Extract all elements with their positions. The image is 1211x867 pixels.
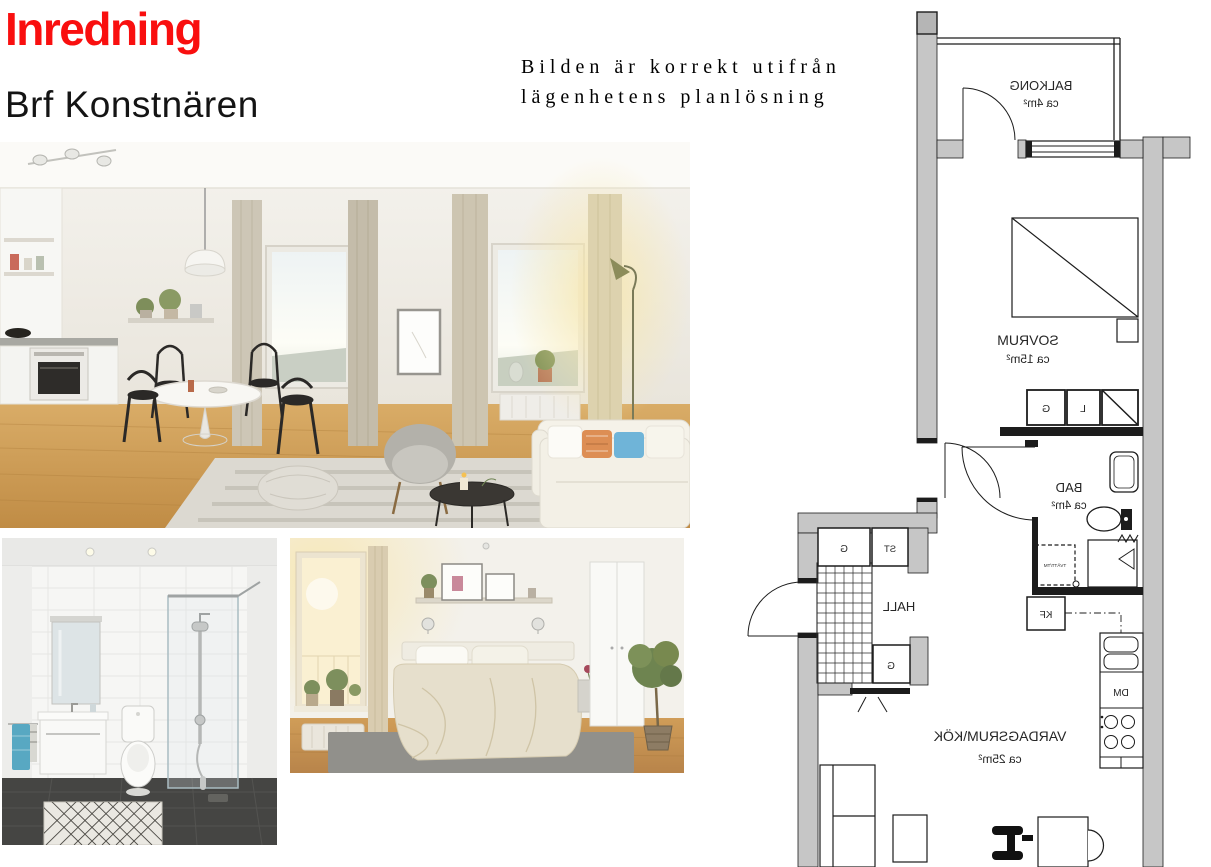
label-wardrobe-g: G (1042, 403, 1050, 415)
door-symbols (748, 88, 1035, 712)
wheelchair-symbol (992, 826, 1033, 860)
page-subtitle: Brf Konstnären (5, 84, 259, 126)
label-vardagsrum-area: ca 25m² (978, 752, 1021, 766)
kitchen-symbols (1065, 613, 1143, 768)
label-wardrobe-l: L (1080, 403, 1086, 415)
photo-bedroom (290, 538, 684, 773)
livingroom-symbols (820, 765, 1103, 867)
photo-living-room (0, 142, 690, 528)
label-kf: KF (1040, 610, 1053, 621)
pillow-blue (614, 432, 644, 458)
ceiling-lamp (483, 543, 489, 549)
label-laundry: TVÄTT/TM (1044, 562, 1067, 568)
label-vardagsrum: VARDAGSRUM\KÖK (933, 727, 1066, 744)
floorplan: BALKONG ca 4m² SOVRUM ca 15m² BAD ca 4m²… (741, 0, 1211, 867)
label-dm: DM (1113, 688, 1129, 699)
bed-symbol (1012, 218, 1138, 342)
curtain (368, 546, 388, 742)
wall-art (398, 310, 440, 374)
pot (5, 328, 31, 338)
label-bad-area: ca 4m² (1051, 500, 1086, 512)
photo-bathroom (2, 538, 277, 845)
bath-mat (32, 796, 180, 845)
hall-tiles (817, 563, 872, 683)
label-sovrum-area: ca 15m² (1006, 352, 1049, 366)
label-balkong-area: ca 4m² (1023, 98, 1058, 110)
bed (394, 642, 582, 760)
bedroom-window-symbol (1026, 141, 1120, 157)
label-closet-g-lower: G (887, 661, 895, 672)
label-closet-st: ST (884, 544, 896, 555)
sofa (532, 420, 690, 528)
living-room-render (0, 142, 690, 528)
label-closet-g-hall: G (840, 544, 848, 555)
pouf (258, 466, 338, 510)
page-title: Inredning (5, 2, 201, 56)
label-balkong: BALKONG (1010, 78, 1073, 93)
label-hall: HALL (883, 599, 916, 614)
label-sovrum: SOVRUM (997, 332, 1058, 348)
bedroom-render (290, 538, 684, 773)
bathroom-render (2, 538, 277, 845)
wardrobe (590, 562, 644, 726)
floorplan-drawing: BALKONG ca 4m² SOVRUM ca 15m² BAD ca 4m²… (741, 0, 1211, 867)
label-bad: BAD (1056, 480, 1083, 495)
